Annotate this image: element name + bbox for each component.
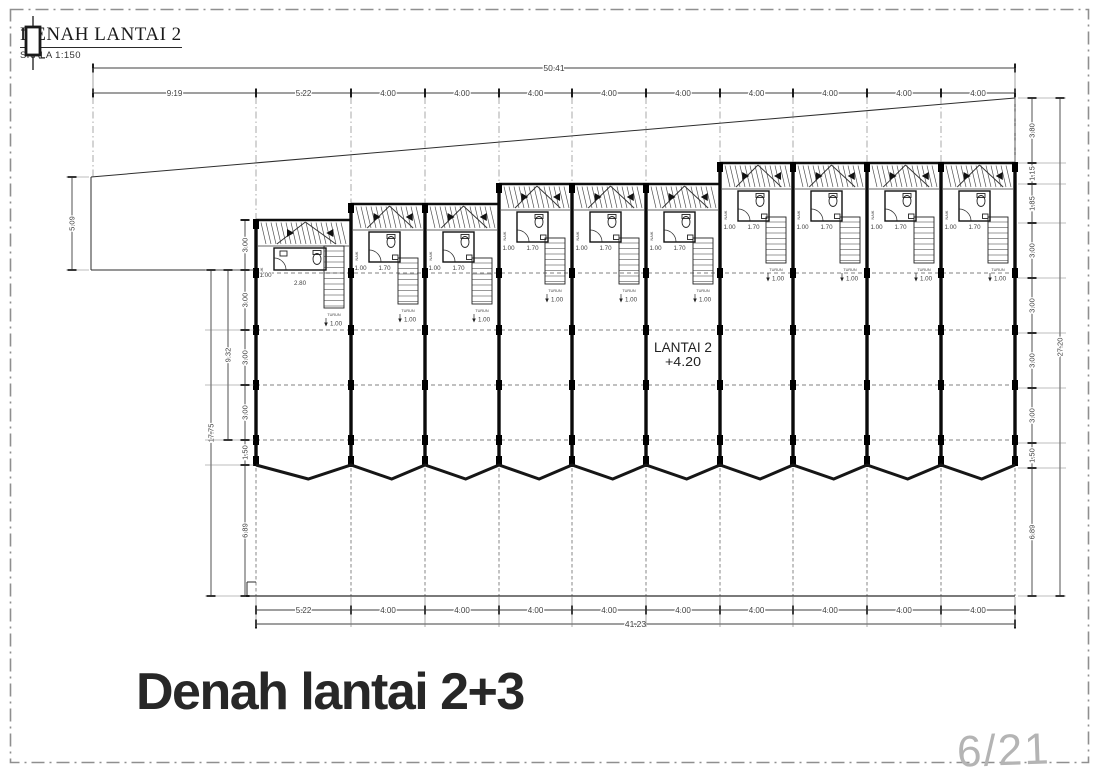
svg-text:1.70: 1.70 bbox=[599, 245, 612, 252]
svg-text:TURUN: TURUN bbox=[475, 309, 489, 313]
svg-text:1.70: 1.70 bbox=[820, 224, 833, 231]
svg-text:4.00: 4.00 bbox=[675, 89, 691, 98]
svg-text:3.00: 3.00 bbox=[1028, 353, 1037, 368]
svg-text:NAIK: NAIK bbox=[576, 231, 580, 240]
svg-text:1.00: 1.00 bbox=[575, 245, 588, 252]
svg-text:41.23: 41.23 bbox=[625, 619, 647, 629]
svg-text:1.00: 1.00 bbox=[870, 224, 883, 231]
svg-text:2.80: 2.80 bbox=[294, 280, 307, 287]
svg-text:3.00: 3.00 bbox=[1028, 243, 1037, 258]
svg-text:1.70: 1.70 bbox=[968, 224, 981, 231]
svg-text:1.00: 1.00 bbox=[478, 317, 491, 324]
svg-text:NAIK: NAIK bbox=[945, 210, 949, 219]
svg-text:1.70: 1.70 bbox=[747, 224, 760, 231]
svg-text:4.00: 4.00 bbox=[675, 606, 691, 615]
svg-text:1.15: 1.15 bbox=[1028, 166, 1037, 181]
svg-text:NAIK: NAIK bbox=[724, 210, 728, 219]
svg-text:4.00: 4.00 bbox=[454, 606, 470, 615]
svg-text:NAIK: NAIK bbox=[650, 231, 654, 240]
section-marker-icon bbox=[20, 16, 46, 70]
svg-text:1.00: 1.00 bbox=[428, 265, 441, 272]
svg-text:4.00: 4.00 bbox=[601, 606, 617, 615]
svg-text:3.80: 3.80 bbox=[1028, 123, 1037, 138]
svg-text:4.00: 4.00 bbox=[601, 89, 617, 98]
svg-text:17.75: 17.75 bbox=[207, 424, 216, 443]
svg-text:4.00: 4.00 bbox=[822, 89, 838, 98]
svg-text:1.50: 1.50 bbox=[241, 445, 250, 460]
svg-text:3.00: 3.00 bbox=[1028, 408, 1037, 423]
svg-text:TURUN: TURUN bbox=[917, 268, 931, 272]
svg-text:TURUN: TURUN bbox=[622, 289, 636, 293]
svg-text:TURUN: TURUN bbox=[843, 268, 857, 272]
svg-text:5.22: 5.22 bbox=[296, 606, 312, 615]
svg-text:4.00: 4.00 bbox=[454, 89, 470, 98]
svg-text:1.00: 1.00 bbox=[330, 321, 343, 328]
svg-text:4.00: 4.00 bbox=[380, 606, 396, 615]
svg-text:4.00: 4.00 bbox=[822, 606, 838, 615]
svg-text:1.00: 1.00 bbox=[944, 224, 957, 231]
svg-text:9.19: 9.19 bbox=[167, 89, 183, 98]
svg-text:1.00: 1.00 bbox=[920, 276, 933, 283]
svg-text:1.00: 1.00 bbox=[649, 245, 662, 252]
svg-text:1.00: 1.00 bbox=[723, 224, 736, 231]
drawing-sheet: NAIK1.002.80TURUN1.00NAIK1.001.70TURUN1.… bbox=[0, 0, 1099, 773]
svg-text:4.00: 4.00 bbox=[970, 89, 986, 98]
svg-text:3.00: 3.00 bbox=[241, 350, 250, 365]
svg-text:1.00: 1.00 bbox=[502, 245, 515, 252]
unit-plans: NAIK1.002.80TURUN1.00NAIK1.001.70TURUN1.… bbox=[256, 163, 1015, 328]
svg-text:3.00: 3.00 bbox=[241, 405, 250, 420]
svg-text:1.00: 1.00 bbox=[699, 297, 712, 304]
svg-text:1.00: 1.00 bbox=[796, 224, 809, 231]
svg-text:4.00: 4.00 bbox=[749, 606, 765, 615]
sheet-border bbox=[11, 10, 1089, 763]
svg-text:6.89: 6.89 bbox=[1028, 525, 1037, 540]
svg-text:1.00: 1.00 bbox=[625, 297, 638, 304]
svg-text:NAIK: NAIK bbox=[797, 210, 801, 219]
svg-text:4.00: 4.00 bbox=[896, 89, 912, 98]
svg-text:3.00: 3.00 bbox=[1028, 298, 1037, 313]
floor-grid-lines bbox=[247, 273, 1015, 596]
svg-text:NAIK: NAIK bbox=[355, 251, 359, 260]
svg-text:27.20: 27.20 bbox=[1056, 338, 1065, 357]
svg-text:5.22: 5.22 bbox=[296, 89, 312, 98]
svg-text:4.00: 4.00 bbox=[970, 606, 986, 615]
svg-text:TURUN: TURUN bbox=[548, 289, 562, 293]
svg-text:6.89: 6.89 bbox=[241, 523, 250, 538]
svg-text:1.00: 1.00 bbox=[772, 276, 785, 283]
svg-text:1.00: 1.00 bbox=[846, 276, 859, 283]
svg-text:5.09: 5.09 bbox=[68, 216, 77, 231]
svg-text:1.70: 1.70 bbox=[526, 245, 539, 252]
svg-text:TURUN: TURUN bbox=[401, 309, 415, 313]
svg-text:+4.20: +4.20 bbox=[665, 355, 701, 369]
svg-text:NAIK: NAIK bbox=[429, 251, 433, 260]
svg-text:1.00: 1.00 bbox=[551, 297, 564, 304]
svg-text:NAIK: NAIK bbox=[871, 210, 875, 219]
svg-text:1.70: 1.70 bbox=[378, 265, 391, 272]
sheet-caption: Denah lantai 2+3 bbox=[136, 662, 524, 722]
floor-plan-svg: NAIK1.002.80TURUN1.00NAIK1.001.70TURUN1.… bbox=[0, 0, 1099, 773]
svg-text:1.00: 1.00 bbox=[354, 265, 367, 272]
floor-level-label: LANTAI 2+4.20 bbox=[654, 340, 712, 369]
svg-text:1.85: 1.85 bbox=[1028, 196, 1037, 211]
svg-text:1.00: 1.00 bbox=[259, 272, 272, 279]
svg-text:1.00: 1.00 bbox=[404, 317, 417, 324]
svg-text:NAIK: NAIK bbox=[503, 231, 507, 240]
svg-text:TURUN: TURUN bbox=[696, 289, 710, 293]
svg-text:3.00: 3.00 bbox=[241, 238, 250, 253]
svg-text:1.00: 1.00 bbox=[994, 276, 1007, 283]
page-number: 6/21 bbox=[957, 724, 1052, 773]
svg-text:1.50: 1.50 bbox=[1028, 448, 1037, 463]
svg-text:4.00: 4.00 bbox=[749, 89, 765, 98]
svg-text:TURUN: TURUN bbox=[991, 268, 1005, 272]
dimension-lines: 50.419.195.224.004.004.004.004.004.004.0… bbox=[66, 63, 1066, 629]
svg-text:4.00: 4.00 bbox=[896, 606, 912, 615]
svg-text:TURUN: TURUN bbox=[769, 268, 783, 272]
title-block: DENAH LANTAI 2 SKALA 1:150 bbox=[20, 16, 182, 61]
svg-text:9.32: 9.32 bbox=[224, 348, 233, 363]
svg-text:50.41: 50.41 bbox=[543, 63, 565, 73]
svg-text:4.00: 4.00 bbox=[528, 89, 544, 98]
svg-text:1.70: 1.70 bbox=[673, 245, 686, 252]
svg-text:4.00: 4.00 bbox=[528, 606, 544, 615]
svg-text:LANTAI 2: LANTAI 2 bbox=[654, 340, 712, 355]
svg-text:1.70: 1.70 bbox=[452, 265, 465, 272]
party-walls bbox=[253, 162, 1018, 479]
svg-text:TURUN: TURUN bbox=[327, 313, 341, 317]
svg-text:1.70: 1.70 bbox=[894, 224, 907, 231]
svg-text:4.00: 4.00 bbox=[380, 89, 396, 98]
svg-text:3.00: 3.00 bbox=[241, 293, 250, 308]
